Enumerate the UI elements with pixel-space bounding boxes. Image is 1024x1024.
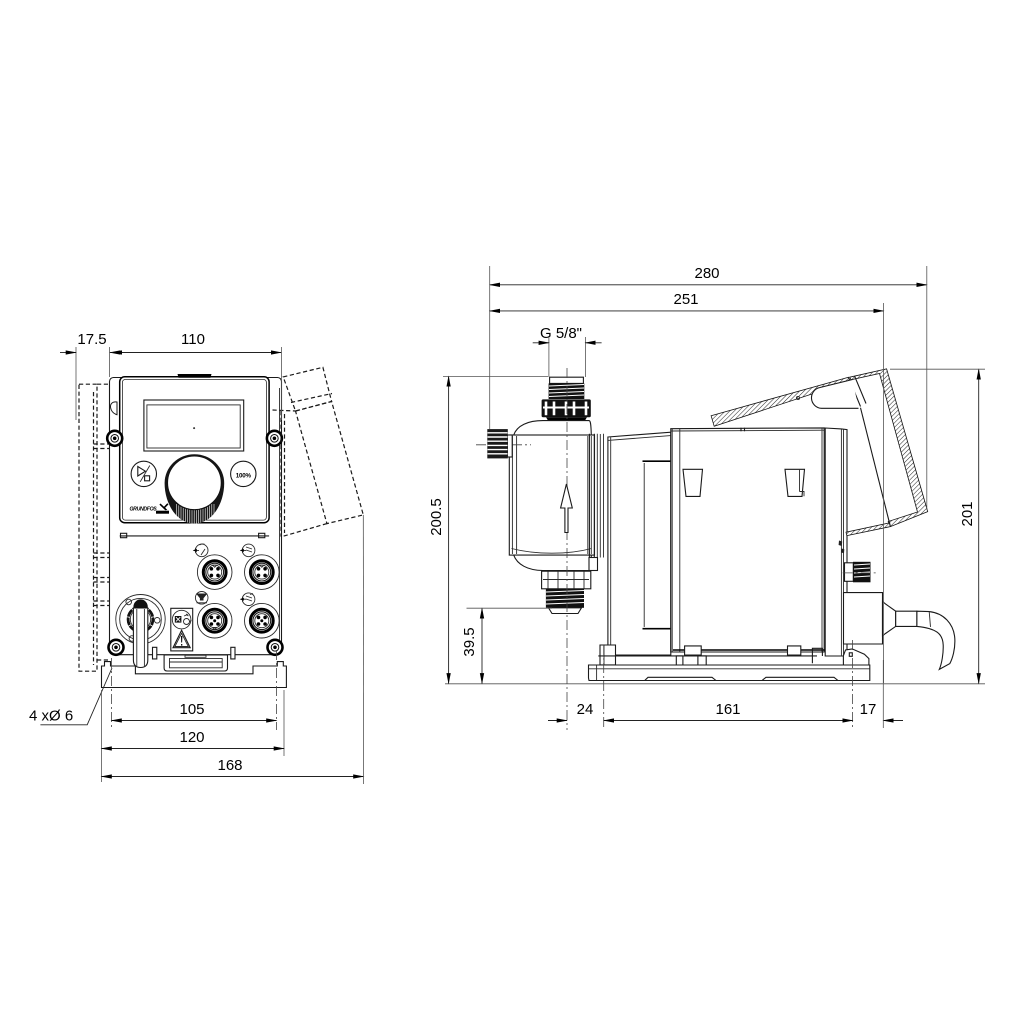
svg-text:201: 201 bbox=[959, 501, 976, 526]
svg-text:105: 105 bbox=[179, 701, 204, 718]
svg-text:GRUNDFOS: GRUNDFOS bbox=[130, 506, 158, 512]
svg-text:251: 251 bbox=[673, 291, 698, 308]
svg-text:161: 161 bbox=[715, 701, 740, 718]
svg-text:200.5: 200.5 bbox=[428, 498, 445, 536]
svg-text:17: 17 bbox=[860, 701, 877, 718]
svg-text:G 5/8": G 5/8" bbox=[540, 325, 582, 342]
svg-text:24: 24 bbox=[577, 701, 594, 718]
svg-text:4 xØ 6: 4 xØ 6 bbox=[29, 707, 73, 724]
svg-text:100%: 100% bbox=[236, 472, 252, 479]
svg-text:120: 120 bbox=[179, 729, 204, 746]
svg-text:110: 110 bbox=[181, 331, 205, 348]
svg-text:17.5: 17.5 bbox=[77, 331, 106, 348]
svg-text:280: 280 bbox=[694, 265, 719, 282]
svg-text:168: 168 bbox=[217, 757, 242, 774]
svg-text:39.5: 39.5 bbox=[461, 627, 478, 656]
